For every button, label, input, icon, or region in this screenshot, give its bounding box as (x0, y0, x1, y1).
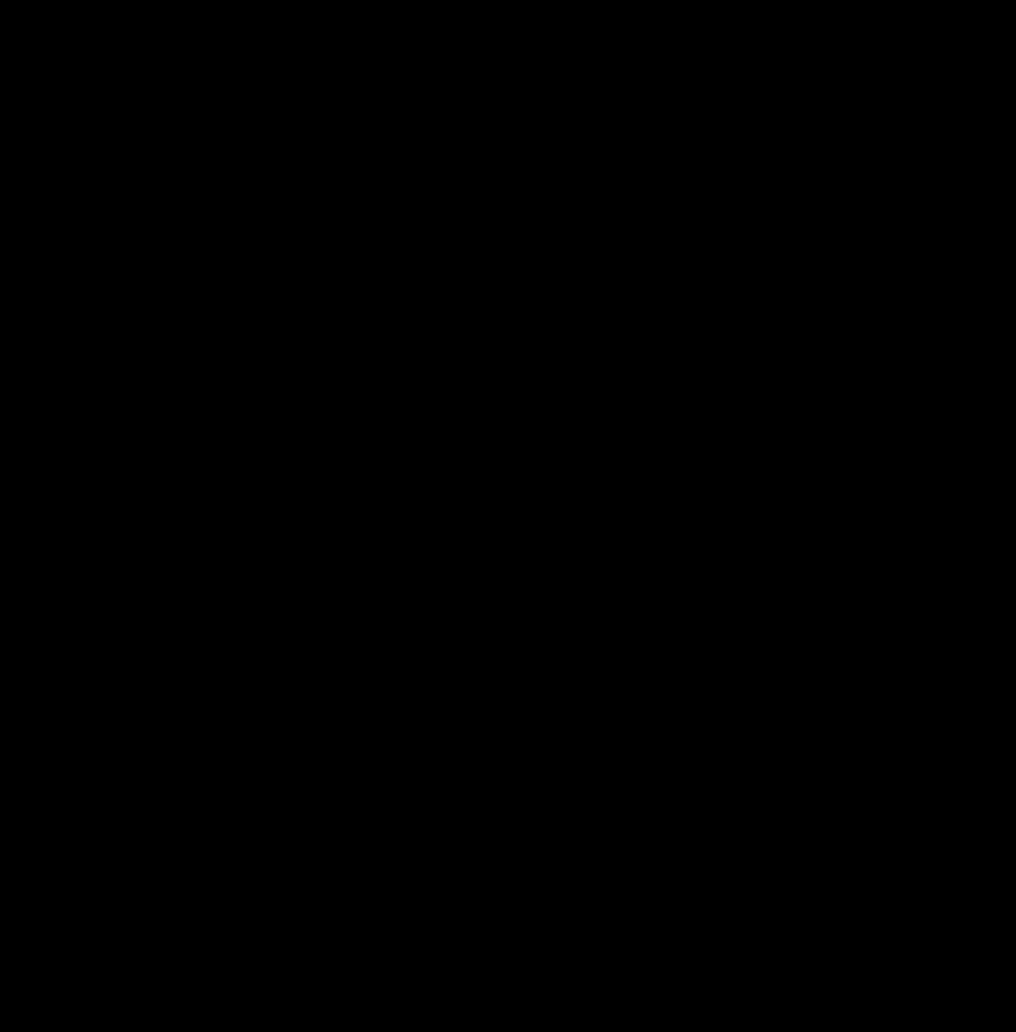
pcb-assembly-drawing (0, 0, 1016, 1032)
pcb-board-svg (0, 0, 1016, 1032)
